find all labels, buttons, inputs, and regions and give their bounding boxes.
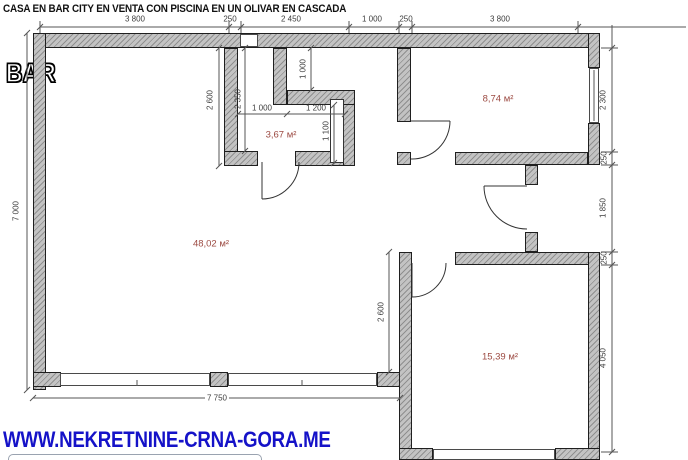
- door-swing-arcs: [262, 121, 527, 297]
- dim-label-bath-inner-height: 2 350: [234, 89, 243, 109]
- dim-label-top-3: 1 000: [362, 15, 382, 24]
- plan-linework: [0, 0, 688, 460]
- dim-label-right-1: 250: [600, 151, 609, 164]
- room-area-label-bathroom: 3,67 м²: [266, 130, 297, 141]
- dim-label-right-2: 1 850: [599, 198, 608, 218]
- dim-label-top-1: 250: [223, 15, 236, 24]
- watermark-url: WWW.NEKRETNINE-CRNA-GORA.ME: [3, 427, 331, 453]
- dim-label-bath-width-left: 1 000: [252, 104, 272, 113]
- dim-label-living-right-height: 2 600: [377, 302, 386, 322]
- floorplan-image: CASA EN BAR CITY EN VENTA CON PISCINA EN…: [0, 0, 688, 460]
- dim-label-bath-width-right: 1 200: [306, 104, 326, 113]
- dim-label-right-0: 2 300: [599, 90, 608, 110]
- dim-label-right-3: 250: [600, 251, 609, 264]
- dim-label-top-0: 3 800: [125, 15, 145, 24]
- dim-label-bottom-total: 7 750: [205, 394, 229, 403]
- dim-label-niche-height: 1 000: [299, 59, 308, 79]
- room-area-label-bedroom-bottom: 15,39 м²: [482, 352, 518, 363]
- dim-label-bath-right-height: 1 100: [322, 121, 331, 141]
- dim-label-top-5: 3 800: [490, 15, 510, 24]
- room-area-label-living: 48,02 м²: [193, 239, 229, 250]
- dim-label-right-4: 4 050: [599, 348, 608, 368]
- dim-label-bath-outer-height: 2 600: [206, 90, 215, 110]
- dim-label-top-2: 2 450: [281, 15, 301, 24]
- dim-label-top-4: 250: [399, 15, 412, 24]
- dimension-lines: [24, 21, 686, 455]
- watermark-box: [8, 454, 262, 460]
- dim-label-left-total: 7 000: [12, 201, 21, 221]
- room-area-label-bedroom-top: 8,74 м²: [483, 94, 514, 105]
